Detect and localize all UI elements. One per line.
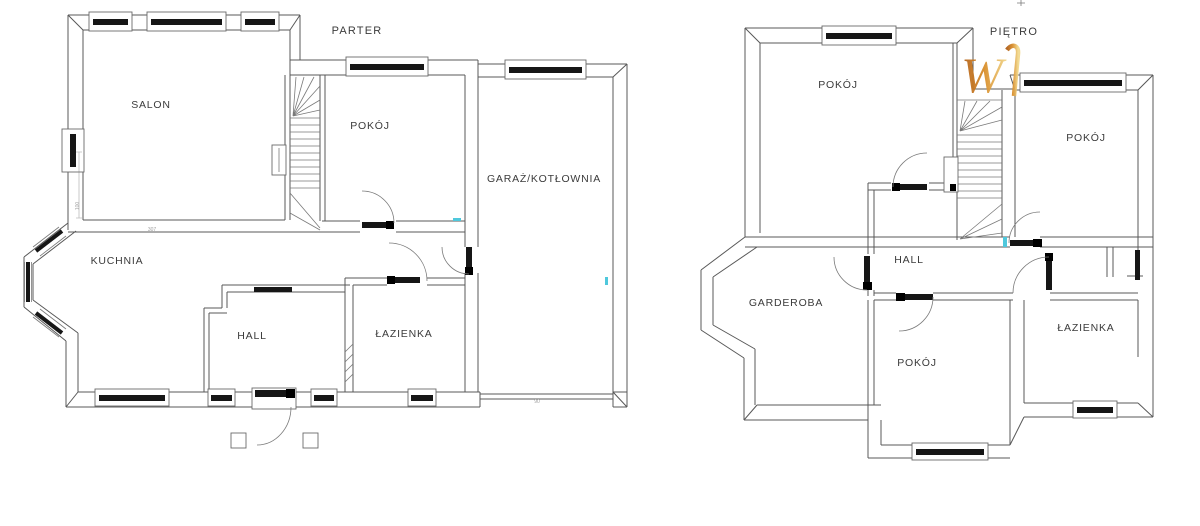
pokoj-bottom-bay-window: [912, 443, 988, 460]
top-edge-artifact: [1017, 0, 1025, 6]
pietro-walls: [701, 28, 1153, 458]
garage-door: [442, 247, 473, 275]
room-label-lazienka: ŁAZIENKA: [375, 328, 432, 340]
parter-windows: [25, 12, 587, 406]
salon-window-left: [62, 129, 84, 172]
room-label-garaz: GARAŻ/KOTŁOWNIA: [487, 172, 601, 185]
room-label-hall-2: HALL: [894, 254, 923, 266]
pokoj-tl-door: [892, 153, 927, 191]
lazienka-radiator-right: [1135, 250, 1140, 280]
watermark-letter: W: [961, 47, 1007, 103]
room-label-pokoj-bottom: POKÓJ: [897, 356, 937, 369]
watermark-logo: W: [961, 46, 1022, 103]
floor-label-pietro: PIĘTRO: [990, 26, 1038, 38]
floorplan-parter: 307 100 90 PARTER SALON POKÓJ GARAŻ/KOTŁ…: [24, 12, 627, 448]
pokoj-tr-window-top: [1020, 73, 1126, 92]
floor-label-parter: PARTER: [332, 25, 383, 37]
watermark-flourish: [1007, 46, 1018, 96]
room-label-hall: HALL: [237, 330, 266, 342]
cad-marker-cyan-1: [453, 218, 461, 221]
corridor-window-bottom: [408, 389, 436, 406]
porch-post-right: [303, 433, 318, 448]
kitchen-window-bottom-1: [95, 389, 169, 406]
room-label-salon: SALON: [131, 99, 171, 111]
bathroom-wall-hatch: [345, 344, 353, 382]
salon-window-top-1: [89, 12, 132, 31]
lazienka-door: [1013, 253, 1053, 293]
salon-window-top-3: [241, 12, 279, 31]
hall-radiator: [254, 287, 292, 292]
dim-salon-side: 100: [75, 202, 81, 211]
room-label-pokoj-tl: POKÓJ: [818, 78, 858, 91]
room-label-garderoba: GARDEROBA: [749, 297, 823, 309]
room-label-lazienka-2: ŁAZIENKA: [1057, 322, 1114, 334]
cad-marker-cyan-3: [1003, 237, 1007, 247]
pietro-doors: [834, 153, 1053, 331]
floor-plan-page: 307 100 90 PARTER SALON POKÓJ GARAŻ/KOTŁ…: [0, 0, 1200, 526]
porch-post-left: [231, 433, 246, 448]
kitchen-bay-window-left: [25, 262, 32, 302]
entrance-door: [252, 388, 296, 445]
room-label-pokoj-tr: POKÓJ: [1066, 131, 1106, 144]
dim-garage-door: 90: [534, 399, 540, 405]
cad-marker-cyan-2: [605, 277, 608, 285]
kitchen-window-bottom-2: [208, 389, 235, 406]
bathroom-door: [387, 243, 427, 284]
pokoj-bottom-door: [896, 293, 933, 331]
dim-salon-width: 307: [148, 227, 157, 233]
parter-dimensions: 307 100 90: [75, 152, 540, 405]
pokoj-tr-door: [1009, 212, 1042, 247]
floor-plan-drawing: 307 100 90 PARTER SALON POKÓJ GARAŻ/KOTŁ…: [0, 0, 1200, 526]
garderoba-door: [834, 256, 872, 290]
floorplan-pietro: W PIĘTRO POKÓJ POKÓJ HALL GARDEROBA POKÓ…: [701, 0, 1153, 460]
garage-window-top: [505, 60, 586, 79]
room-label-pokoj: POKÓJ: [350, 119, 390, 132]
room-label-kuchnia: KUCHNIA: [91, 255, 144, 267]
salon-window-top-2: [147, 12, 226, 31]
pokoj-door: [362, 191, 394, 229]
lazienka-window-bottom: [1073, 401, 1117, 418]
parter-staircase: [272, 77, 320, 230]
pokoj-tl-window-top: [822, 26, 896, 45]
kitchen-bay-window-lower: [33, 309, 66, 337]
hall-window-bottom: [311, 389, 337, 406]
pokoj-window-top: [346, 57, 428, 76]
